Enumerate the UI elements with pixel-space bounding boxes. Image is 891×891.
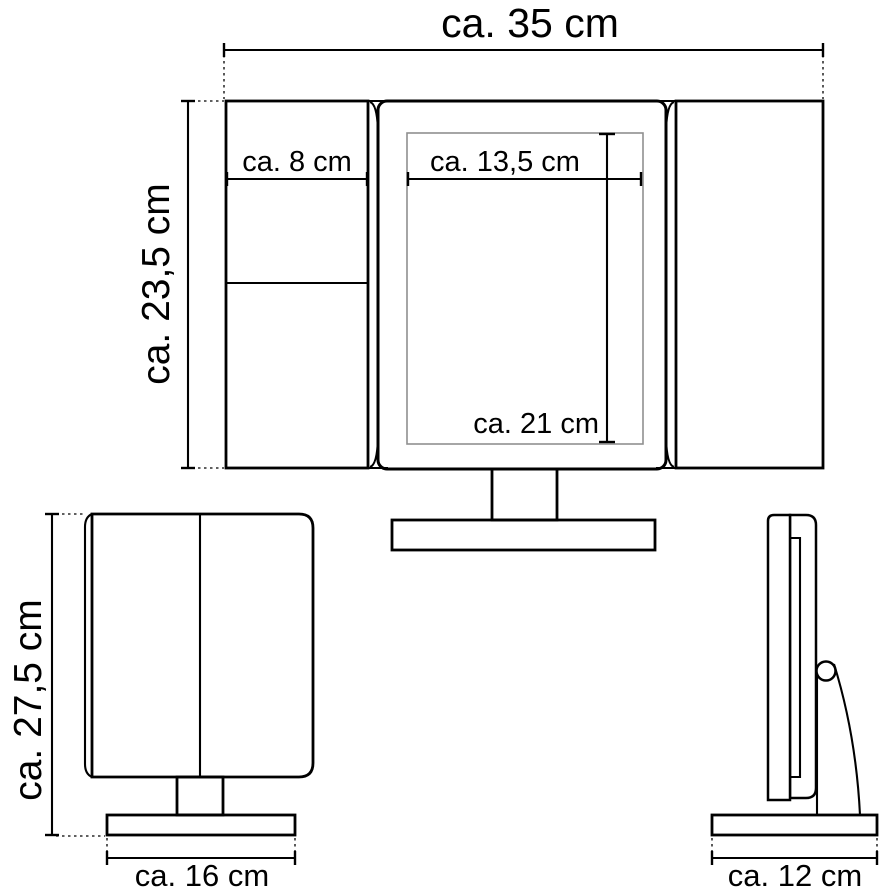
hinge-cap-top-right [666,102,674,130]
mirror-housing-outline [790,515,816,798]
overall-width-label: ca. 35 cm [441,0,619,46]
mirror-panel-outline [768,515,790,800]
hinge-cap-bottom-left [370,439,378,467]
mirror-height-label: ca. 21 cm [473,408,599,440]
hinge-cap-top-left [370,102,378,130]
hinge-cap-bottom-right [666,439,674,467]
base-depth-label: ca. 12 cm [728,858,862,891]
center-mirror: ca. 13,5 cm ca. 21 cm [368,101,676,469]
mirror-width-label: ca. 13,5 cm [430,146,580,178]
overall-height-label: ca. 23,5 cm [135,183,178,385]
front-view: ca. 35 cm ca. 23,5 cm ca. 8 cm [135,0,823,550]
hinge-pivot [817,662,836,681]
folded-height-dimension: ca. 27,5 cm [7,514,105,836]
left-panel-width-label: ca. 8 cm [242,146,352,178]
left-panel: ca. 8 cm [226,101,368,468]
support-leg-back-edge [834,664,860,815]
side-stand-base [712,815,877,835]
front-overall-width-dimension: ca. 35 cm [224,0,823,99]
folded-height-label: ca. 27,5 cm [7,599,50,801]
side-body [712,515,877,835]
trifold-mirror-dimension-diagram: ca. 35 cm ca. 23,5 cm ca. 8 cm [0,0,891,891]
folded-body-outline [92,514,313,777]
stand-base [392,520,655,550]
dimension-drawing-canvas: ca. 35 cm ca. 23,5 cm ca. 8 cm [0,0,891,891]
right-panel-outline [676,101,823,468]
front-stand [392,469,655,550]
folded-view: ca. 27,5 cm ca. 16 cm [7,514,313,891]
front-overall-height-dimension: ca. 23,5 cm [135,101,224,468]
folded-stand-base [107,815,295,835]
stand-neck [492,469,557,520]
folded-base-width-dimension: ca. 16 cm [107,838,295,891]
base-width-label: ca. 16 cm [135,858,269,891]
side-view: ca. 12 cm [712,515,877,891]
folded-body [85,514,313,835]
side-base-depth-dimension: ca. 12 cm [712,838,877,891]
folded-stand-neck [177,777,223,815]
